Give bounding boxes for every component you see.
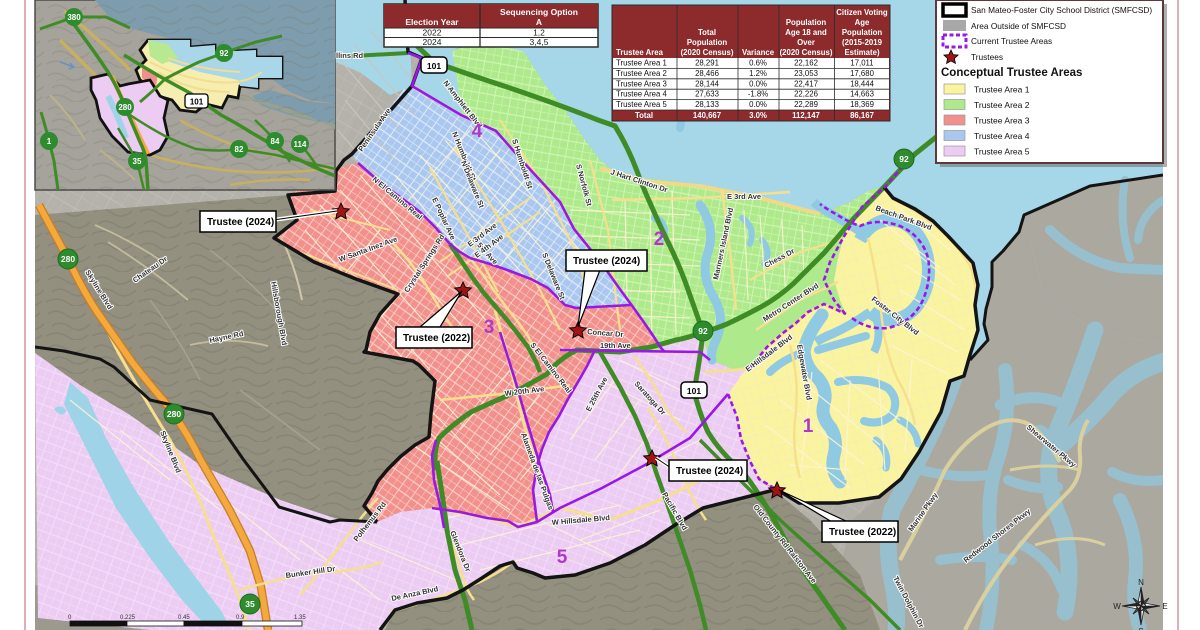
svg-text:22,162: 22,162: [794, 59, 818, 68]
svg-text:0.9: 0.9: [236, 615, 245, 621]
svg-text:Age 18 and: Age 18 and: [785, 28, 827, 37]
svg-text:280: 280: [118, 103, 132, 112]
svg-text:1,2: 1,2: [533, 28, 545, 38]
svg-text:Trustees: Trustees: [971, 52, 1003, 62]
svg-text:28,133: 28,133: [695, 100, 719, 109]
svg-text:86,167: 86,167: [850, 111, 874, 120]
svg-text:Trustee Area 4: Trustee Area 4: [974, 131, 1030, 141]
svg-text:2022: 2022: [423, 28, 442, 38]
svg-text:Trustee Area: Trustee Area: [616, 48, 664, 57]
svg-text:Trustee Area 5: Trustee Area 5: [974, 147, 1030, 157]
svg-text:Trustee Area 1: Trustee Area 1: [616, 59, 667, 68]
svg-text:14,663: 14,663: [850, 90, 874, 99]
svg-text:22,226: 22,226: [794, 90, 818, 99]
svg-text:4: 4: [472, 121, 483, 142]
svg-text:18,369: 18,369: [850, 100, 874, 109]
svg-text:Population: Population: [786, 18, 827, 27]
svg-text:Sequencing Option: Sequencing Option: [500, 7, 578, 17]
svg-text:W: W: [1113, 602, 1121, 611]
svg-text:Population: Population: [687, 38, 728, 47]
svg-text:3.0%: 3.0%: [749, 111, 767, 120]
svg-text:5: 5: [557, 547, 568, 568]
svg-text:140,667: 140,667: [693, 111, 721, 120]
svg-text:Election Year: Election Year: [405, 17, 459, 27]
svg-text:112,147: 112,147: [792, 111, 820, 120]
svg-text:Variance: Variance: [742, 48, 775, 57]
svg-text:Conceptual Trustee Areas: Conceptual Trustee Areas: [941, 67, 1082, 79]
svg-text:(2020 Census): (2020 Census): [681, 48, 734, 57]
svg-text:Trustee (2024): Trustee (2024): [207, 217, 274, 228]
svg-text:84: 84: [271, 137, 280, 146]
svg-text:101: 101: [190, 98, 204, 107]
svg-text:35: 35: [133, 157, 142, 166]
svg-text:Population: Population: [842, 28, 883, 37]
svg-text:Area Outside of SMFCSD: Area Outside of SMFCSD: [971, 21, 1066, 31]
svg-text:E 3rd Ave: E 3rd Ave: [727, 192, 761, 201]
svg-text:1.2%: 1.2%: [749, 69, 767, 78]
svg-text:Age: Age: [855, 18, 870, 27]
svg-text:101: 101: [427, 61, 441, 71]
svg-text:35: 35: [245, 599, 255, 609]
svg-text:18,444: 18,444: [850, 79, 875, 88]
svg-text:114: 114: [294, 140, 307, 149]
svg-text:27,633: 27,633: [695, 90, 719, 99]
svg-text:280: 280: [61, 254, 75, 264]
svg-text:Current Trustee Areas: Current Trustee Areas: [971, 36, 1052, 46]
svg-text:Trustee Area 1: Trustee Area 1: [974, 85, 1030, 95]
svg-text:3: 3: [484, 317, 495, 338]
svg-text:Trustee Area 4: Trustee Area 4: [616, 90, 668, 99]
svg-text:22,417: 22,417: [794, 79, 818, 88]
svg-text:1: 1: [47, 137, 52, 146]
svg-text:A: A: [536, 17, 542, 27]
svg-text:Trustee Area 3: Trustee Area 3: [616, 79, 667, 88]
svg-text:28,144: 28,144: [695, 79, 720, 88]
svg-text:Trustee (2022): Trustee (2022): [829, 527, 896, 538]
svg-text:-1.8%: -1.8%: [748, 90, 768, 99]
svg-text:0.45: 0.45: [178, 615, 190, 621]
svg-text:Trustee Area 5: Trustee Area 5: [616, 100, 668, 109]
svg-text:28,291: 28,291: [695, 59, 719, 68]
svg-text:(2020 Census): (2020 Census): [780, 48, 833, 57]
svg-text:(2015-2019: (2015-2019: [842, 38, 883, 47]
svg-text:0.0%: 0.0%: [749, 79, 767, 88]
svg-text:17,680: 17,680: [850, 69, 875, 78]
svg-text:23,053: 23,053: [794, 69, 818, 78]
svg-text:Trustee Area 2: Trustee Area 2: [616, 69, 667, 78]
svg-text:0.6%: 0.6%: [749, 59, 767, 68]
svg-text:Total: Total: [635, 111, 653, 120]
svg-text:17,011: 17,011: [850, 59, 873, 68]
svg-text:92: 92: [899, 154, 909, 164]
svg-text:101: 101: [687, 386, 701, 396]
svg-text:2: 2: [654, 229, 665, 250]
svg-text:Trustee (2022): Trustee (2022): [403, 333, 470, 344]
svg-text:280: 280: [167, 409, 181, 419]
svg-text:Estimate): Estimate): [844, 48, 880, 57]
svg-text:28,466: 28,466: [695, 69, 719, 78]
svg-text:2024: 2024: [423, 37, 442, 47]
svg-text:San Mateo-Foster City School D: San Mateo-Foster City School District (S…: [971, 5, 1152, 15]
svg-text:N: N: [1138, 578, 1144, 587]
svg-text:22,289: 22,289: [794, 100, 818, 109]
svg-text:3,4,5: 3,4,5: [530, 37, 549, 47]
svg-text:Trustee (2024): Trustee (2024): [573, 256, 640, 267]
svg-text:Trustee Area 2: Trustee Area 2: [974, 100, 1030, 110]
svg-text:380: 380: [67, 13, 81, 22]
svg-text:1.35: 1.35: [294, 615, 306, 621]
svg-text:82: 82: [235, 145, 244, 154]
svg-text:1: 1: [803, 416, 814, 437]
svg-text:llins Rd: llins Rd: [336, 51, 364, 60]
svg-text:92: 92: [220, 49, 229, 58]
svg-text:Over: Over: [797, 38, 815, 47]
svg-text:Trustee Area 3: Trustee Area 3: [974, 116, 1030, 126]
svg-text:92: 92: [698, 326, 708, 336]
svg-text:Trustee (2024): Trustee (2024): [676, 466, 743, 477]
svg-text:Total: Total: [698, 28, 716, 37]
svg-text:19th Ave: 19th Ave: [600, 341, 631, 350]
svg-text:0.225: 0.225: [120, 615, 136, 621]
svg-text:0.0%: 0.0%: [749, 100, 767, 109]
svg-text:Citizen Voting: Citizen Voting: [836, 8, 888, 17]
svg-text:E: E: [1162, 602, 1167, 611]
